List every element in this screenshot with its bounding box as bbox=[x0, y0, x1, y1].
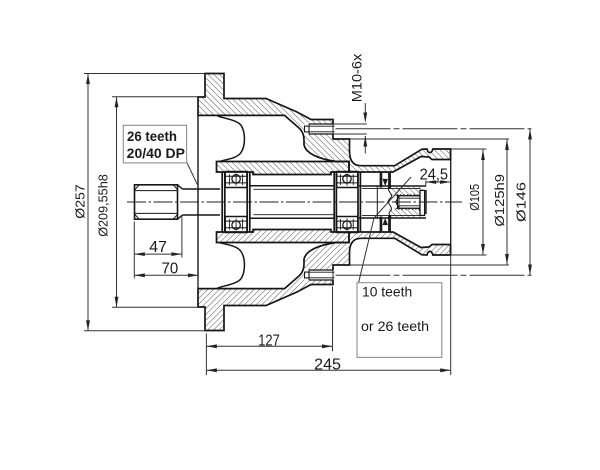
svg-text:20/40 DP: 20/40 DP bbox=[127, 146, 185, 161]
svg-text:26 teeth: 26 teeth bbox=[127, 129, 177, 144]
svg-text:24,5: 24,5 bbox=[420, 166, 448, 183]
svg-text:245: 245 bbox=[314, 356, 341, 373]
svg-text:47: 47 bbox=[149, 239, 167, 256]
svg-text:10 teeth: 10 teeth bbox=[362, 284, 412, 300]
svg-text:Ø146: Ø146 bbox=[514, 182, 529, 222]
svg-text:M10-6x: M10-6x bbox=[349, 54, 365, 103]
svg-text:Ø125h9: Ø125h9 bbox=[492, 174, 507, 227]
svg-text:Ø209,55h8: Ø209,55h8 bbox=[96, 174, 111, 237]
svg-text:127: 127 bbox=[258, 333, 280, 350]
svg-text:70: 70 bbox=[162, 260, 179, 277]
svg-text:or 26 teeth: or 26 teeth bbox=[361, 318, 429, 334]
svg-text:Ø105: Ø105 bbox=[467, 184, 482, 211]
svg-text:Ø257: Ø257 bbox=[73, 184, 88, 218]
